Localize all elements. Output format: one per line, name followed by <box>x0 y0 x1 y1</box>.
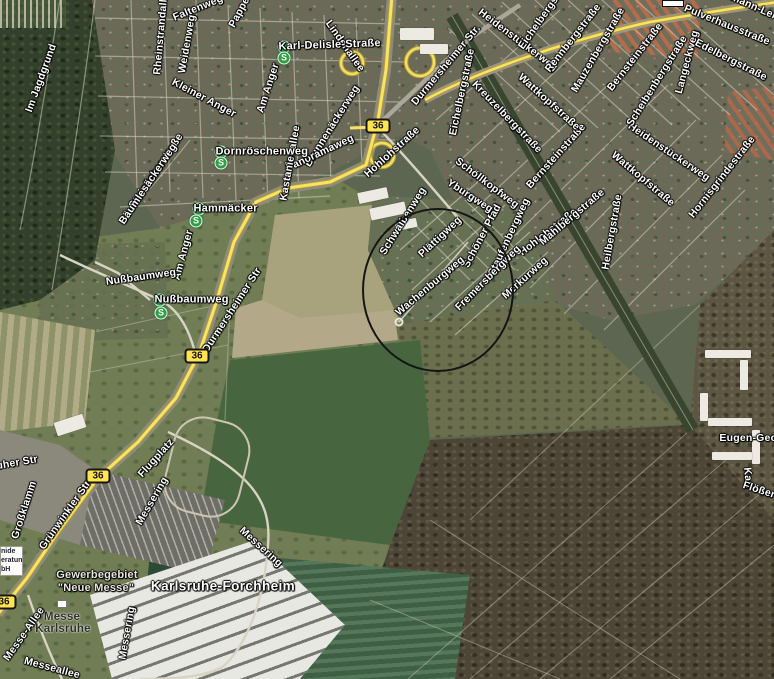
street-label: Pappel <box>226 0 253 30</box>
street-label: Messering <box>237 525 285 570</box>
street-label: Bernsteinstraße <box>524 121 588 191</box>
street-label: Mahlbergstraße <box>537 186 607 247</box>
street-label: Heilbergstraße <box>599 193 624 270</box>
poi-label: Messe <box>44 611 80 623</box>
sbahn-station-icon: S <box>190 215 203 228</box>
street-label: Nußbaumweg <box>105 266 177 288</box>
street-label: Weidenweg <box>176 14 198 75</box>
street-label: Am Anger <box>254 62 281 115</box>
street-label: Flößer <box>741 479 774 501</box>
satellite-map-viewport[interactable]: nide eratung bH Im JagdgrundRheinstranda… <box>0 0 774 679</box>
sbahn-station-icon: S <box>278 52 291 65</box>
sbahn-station-icon: S <box>215 157 228 170</box>
street-label: Bäumlesäckerweg <box>117 141 180 226</box>
street-label: ruher Str <box>0 453 39 473</box>
route-36-badge: 36 <box>86 469 111 484</box>
district-label: Gewerbegebiet <box>56 569 137 581</box>
poi-label: Karlsruhe <box>35 623 91 635</box>
town-label: Karlsruhe-Forchheim <box>151 579 295 594</box>
street-label: Messeallee <box>23 655 82 679</box>
route-36-badge: 36 <box>366 119 391 134</box>
street-label: Faltenweg <box>171 0 225 24</box>
street-label: Rheinstrandallee <box>151 0 171 75</box>
route-36-badge: 36 <box>185 349 210 364</box>
street-label: Durmersheimer Str <box>200 265 264 354</box>
route-36-badge: 36 <box>0 595 17 610</box>
station-label: Nußbaumweg <box>154 294 167 307</box>
street-label: Im Jagdgrund <box>23 42 59 114</box>
street-label: Großklamm <box>9 480 39 541</box>
annotation-circle <box>362 208 514 372</box>
street-label: Grünwinkler Str <box>37 478 94 552</box>
street-label: Flugplatz <box>136 436 177 480</box>
street-label: Kleiner Anger <box>170 76 238 120</box>
sbahn-station-icon: S <box>155 307 168 320</box>
district-label: "Neue Messe" <box>58 582 134 594</box>
street-label: Messering <box>116 605 137 660</box>
street-label: Eugen-Gec <box>719 432 774 444</box>
street-label: Messering <box>133 475 170 528</box>
